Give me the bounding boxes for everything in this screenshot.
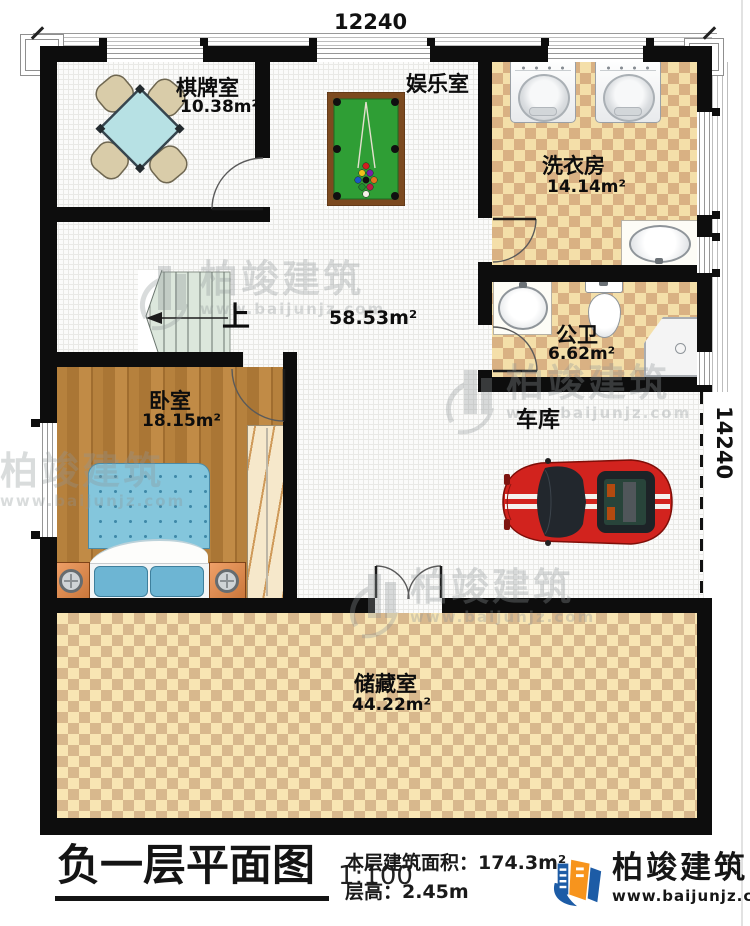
brand-logo-icon xyxy=(548,851,606,909)
room-label-entertainment: 娱乐室 xyxy=(406,73,469,96)
dimension-right: 14240 xyxy=(712,406,736,479)
room-label-garage: 车库 xyxy=(516,409,560,433)
brand-url: www.baijunjz.com xyxy=(612,887,750,905)
stats-height: 层高：2.45m xyxy=(345,878,566,907)
room-area-storage: 44.22m² xyxy=(352,696,431,715)
room-label-laundry: 洗衣房 xyxy=(542,155,605,178)
hall-area-label: 58.53m² xyxy=(329,308,417,329)
room-area-bathroom: 6.62m² xyxy=(548,345,615,364)
room-area-bedroom: 18.15m² xyxy=(142,412,221,431)
room-area-laundry: 14.14m² xyxy=(547,178,626,197)
plan-stats: 本层建筑面积：174.3m² 层高：2.45m xyxy=(345,849,566,908)
brand-name: 柏竣建筑 xyxy=(612,851,750,887)
stairs-up-label: 上 xyxy=(222,302,250,333)
dimension-top: 12240 xyxy=(334,10,407,34)
room-label-bedroom: 卧室 xyxy=(149,390,191,413)
plan-title: 负一层平面图 xyxy=(55,842,329,901)
room-label-storage: 储藏室 xyxy=(354,673,417,696)
stats-area: 本层建筑面积：174.3m² xyxy=(345,849,566,878)
brand-block: 柏竣建筑 www.baijunjz.com xyxy=(548,851,750,909)
room-area-chess: 10.38m² xyxy=(180,98,259,117)
floor-plan-page: { "plan": { "dim_top": "12240", "dim_rig… xyxy=(0,0,750,926)
door-arcs xyxy=(0,0,750,926)
